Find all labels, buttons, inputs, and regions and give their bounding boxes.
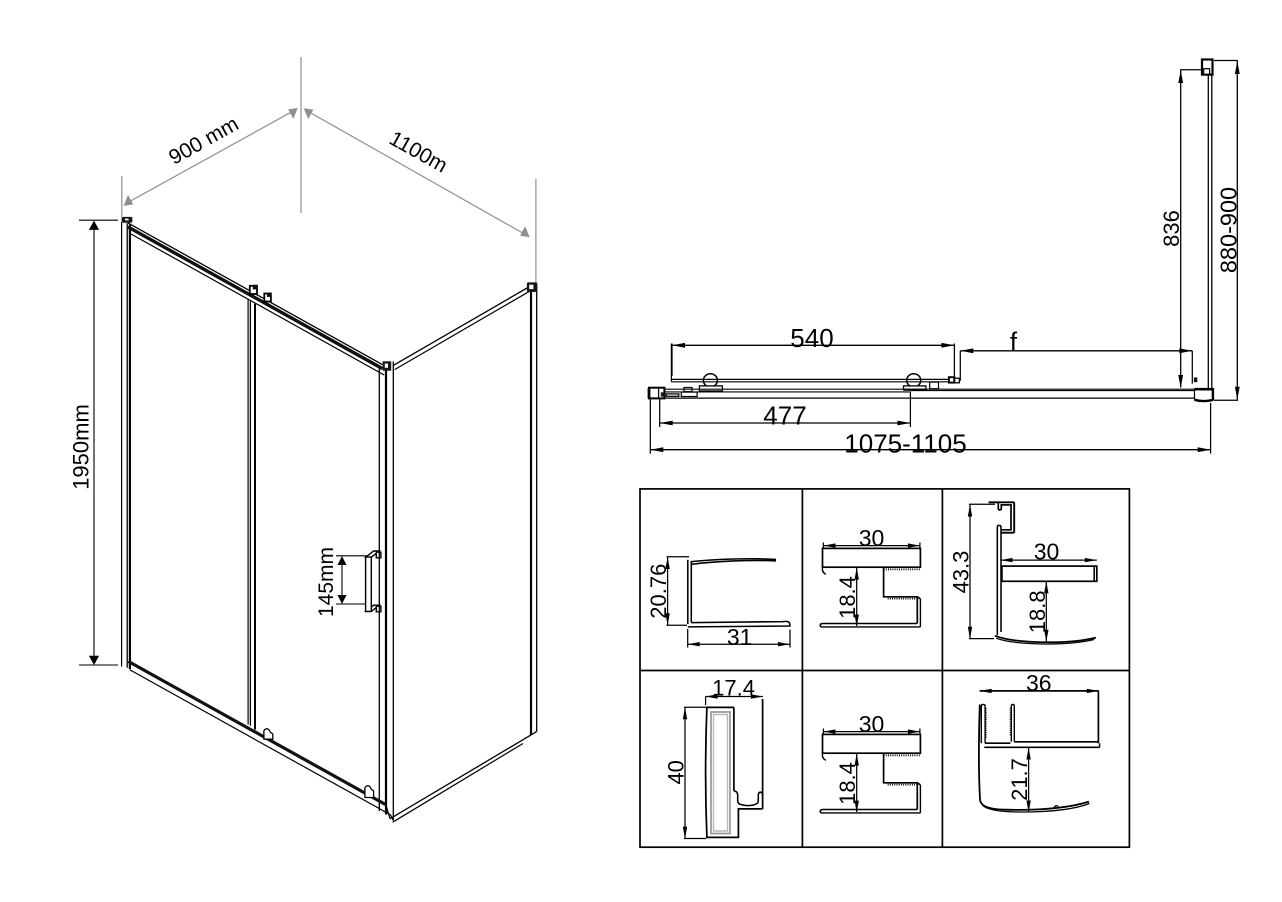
svg-text:31: 31 <box>727 624 753 650</box>
svg-text:1075-1105: 1075-1105 <box>844 429 966 459</box>
svg-text:f: f <box>1010 327 1018 357</box>
svg-text:18.4: 18.4 <box>835 576 860 619</box>
svg-text:880-900: 880-900 <box>1216 187 1242 273</box>
svg-text:20.76: 20.76 <box>646 564 671 619</box>
svg-text:836: 836 <box>1159 210 1184 247</box>
svg-text:21.7: 21.7 <box>1007 758 1032 801</box>
svg-text:1950mm: 1950mm <box>68 404 93 490</box>
svg-text:477: 477 <box>763 401 806 431</box>
svg-text:30: 30 <box>1034 539 1060 565</box>
svg-text:145mm: 145mm <box>315 547 338 617</box>
svg-text:30: 30 <box>859 525 885 551</box>
svg-text:17.4: 17.4 <box>712 676 755 701</box>
svg-text:36: 36 <box>1026 670 1052 696</box>
svg-text:40: 40 <box>664 760 689 784</box>
svg-text:43.3: 43.3 <box>949 551 974 594</box>
svg-text:18.8: 18.8 <box>1025 590 1050 633</box>
svg-text:540: 540 <box>790 323 833 353</box>
